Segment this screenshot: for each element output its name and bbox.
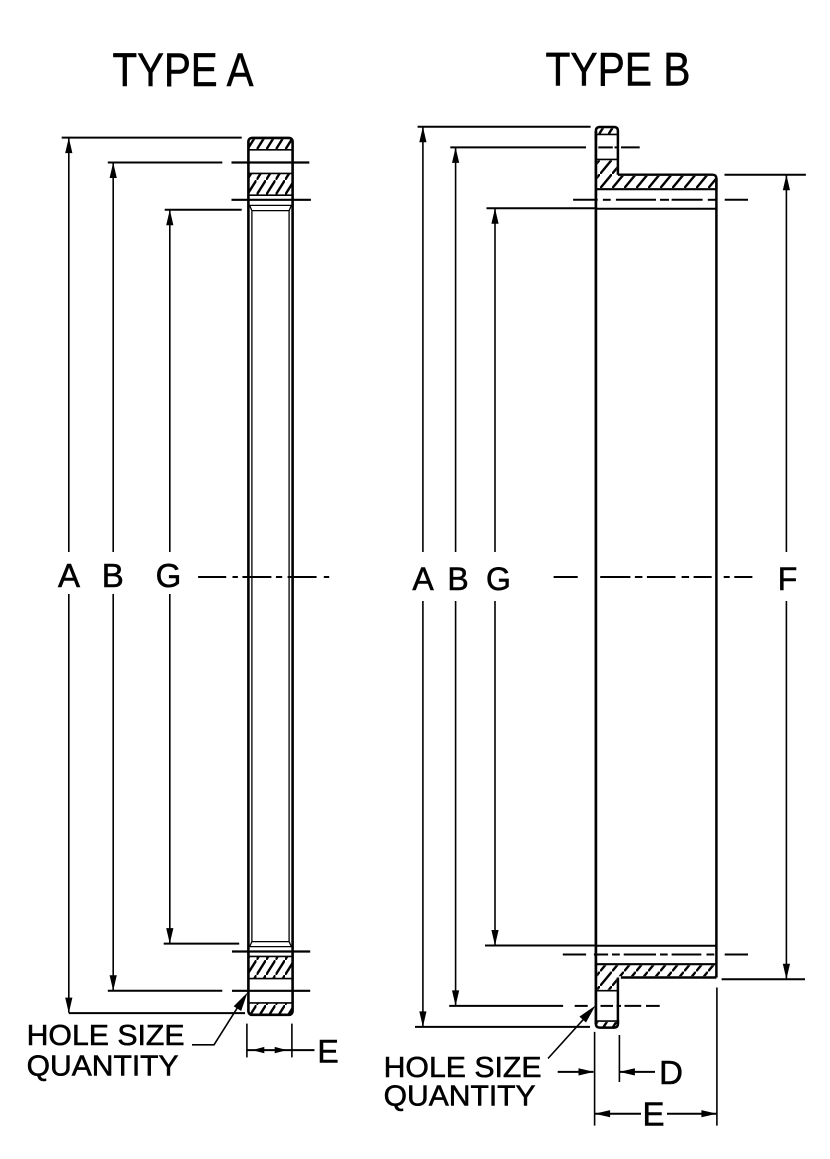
svg-text:E: E: [642, 1096, 664, 1133]
svg-text:A: A: [412, 561, 434, 597]
svg-text:D: D: [659, 1054, 683, 1091]
svg-text:B: B: [447, 561, 468, 597]
svg-text:G: G: [486, 561, 511, 597]
svg-text:QUANTITY: QUANTITY: [27, 1051, 179, 1083]
svg-text:B: B: [102, 557, 124, 594]
svg-text:QUANTITY: QUANTITY: [384, 1081, 536, 1113]
svg-text:HOLE SIZE: HOLE SIZE: [27, 1020, 185, 1052]
svg-text:E: E: [317, 1034, 338, 1070]
svg-text:HOLE SIZE: HOLE SIZE: [384, 1052, 542, 1084]
svg-text:TYPE B: TYPE B: [546, 43, 691, 96]
svg-text:TYPE A: TYPE A: [113, 43, 255, 96]
svg-text:G: G: [156, 557, 182, 594]
svg-text:A: A: [58, 557, 80, 594]
svg-text:F: F: [778, 561, 798, 597]
